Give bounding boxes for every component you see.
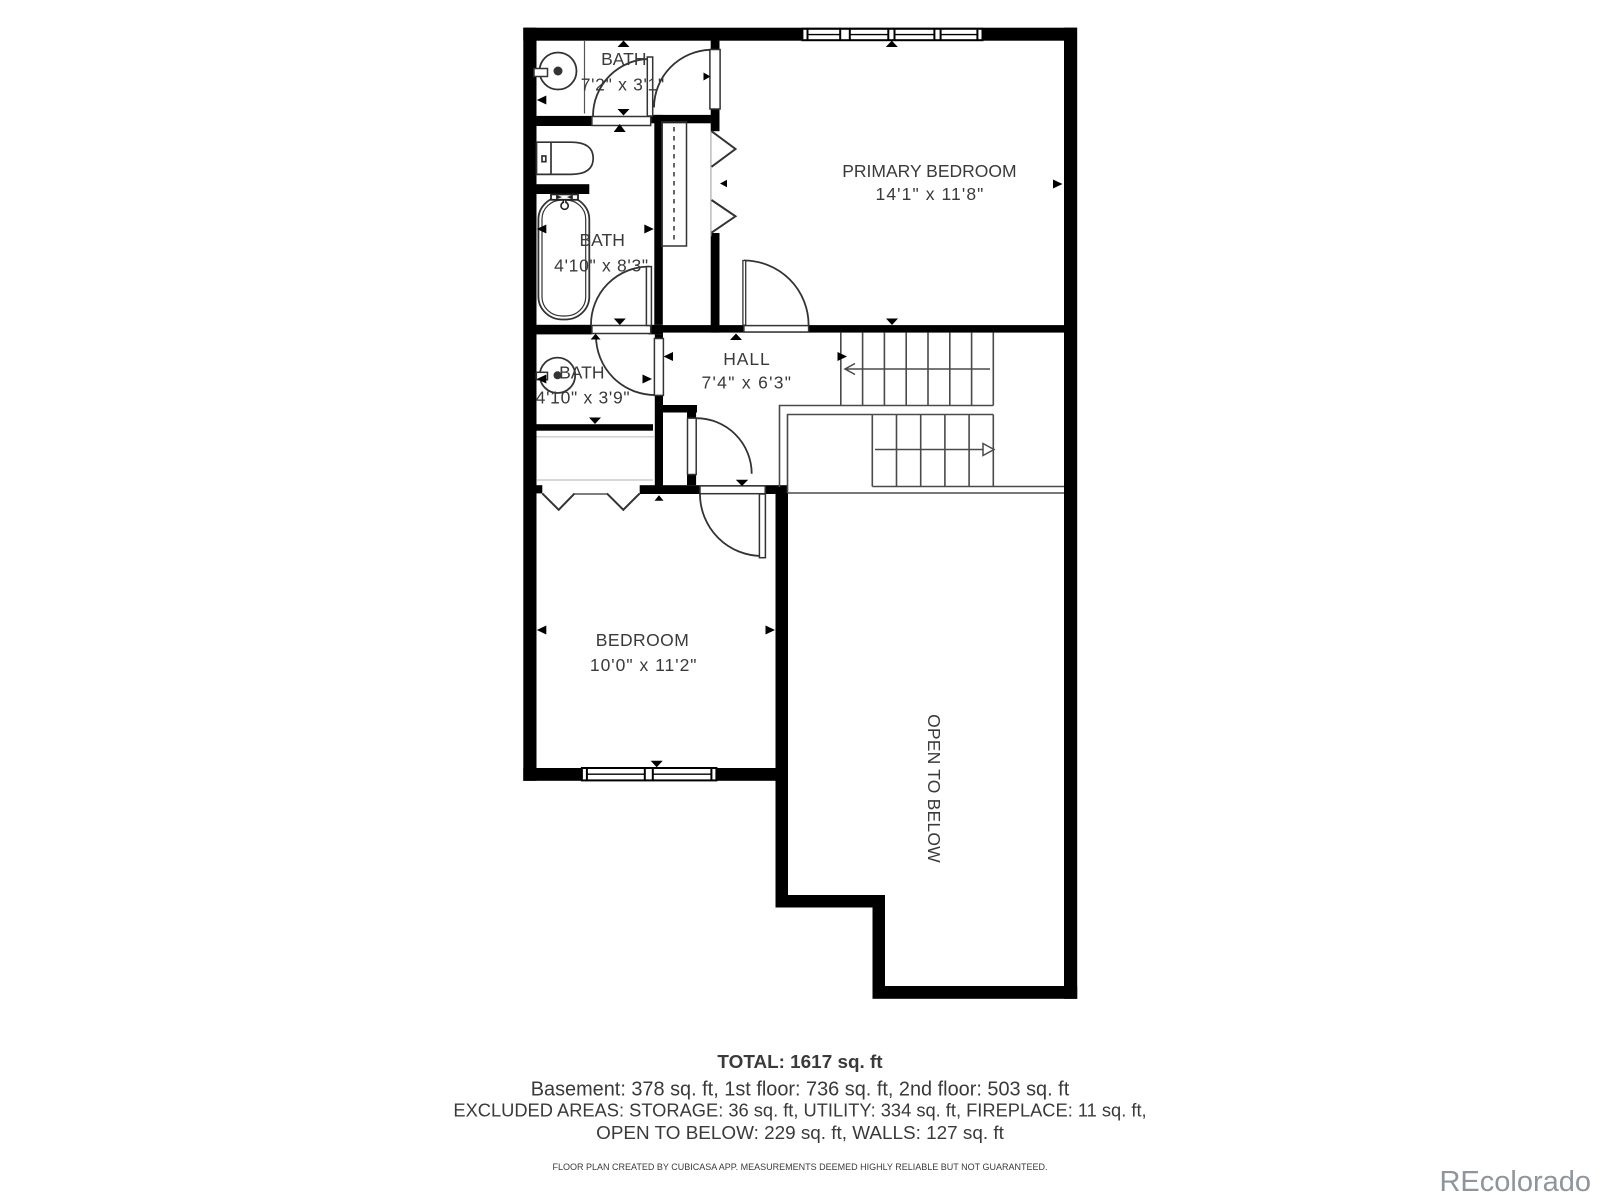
svg-text:BATH: BATH: [601, 49, 646, 69]
svg-text:4'10" x 3'9": 4'10" x 3'9": [536, 388, 631, 408]
svg-text:HALL: HALL: [723, 349, 770, 369]
svg-text:BATH: BATH: [580, 230, 625, 250]
svg-text:BATH: BATH: [559, 363, 604, 383]
svg-text:7'2" x 3'1": 7'2" x 3'1": [581, 75, 665, 95]
svg-text:FLOOR PLAN CREATED BY CUBICASA: FLOOR PLAN CREATED BY CUBICASA APP. MEAS…: [553, 1162, 1048, 1172]
svg-text:Basement: 378 sq. ft, 1st floo: Basement: 378 sq. ft, 1st floor: 736 sq.…: [531, 1079, 1070, 1101]
svg-text:OPEN TO BELOW: OPEN TO BELOW: [924, 714, 944, 863]
svg-text:REcolorado: REcolorado: [1439, 1166, 1591, 1198]
svg-text:10'0" x 11'2": 10'0" x 11'2": [590, 655, 698, 675]
svg-text:OPEN TO BELOW: 229 sq. ft, WAL: OPEN TO BELOW: 229 sq. ft, WALLS: 127 sq…: [596, 1123, 1004, 1144]
svg-text:7'4" x 6'3": 7'4" x 6'3": [701, 373, 792, 393]
svg-text:4'10" x 8'3": 4'10" x 8'3": [554, 256, 649, 276]
svg-text:14'1" x 11'8": 14'1" x 11'8": [876, 184, 985, 204]
svg-text:TOTAL: 1617 sq. ft: TOTAL: 1617 sq. ft: [717, 1052, 883, 1073]
svg-text:BEDROOM: BEDROOM: [596, 630, 690, 650]
svg-text:PRIMARY BEDROOM: PRIMARY BEDROOM: [842, 161, 1016, 181]
svg-text:EXCLUDED AREAS: STORAGE: 36 sq: EXCLUDED AREAS: STORAGE: 36 sq. ft, UTIL…: [453, 1100, 1146, 1121]
